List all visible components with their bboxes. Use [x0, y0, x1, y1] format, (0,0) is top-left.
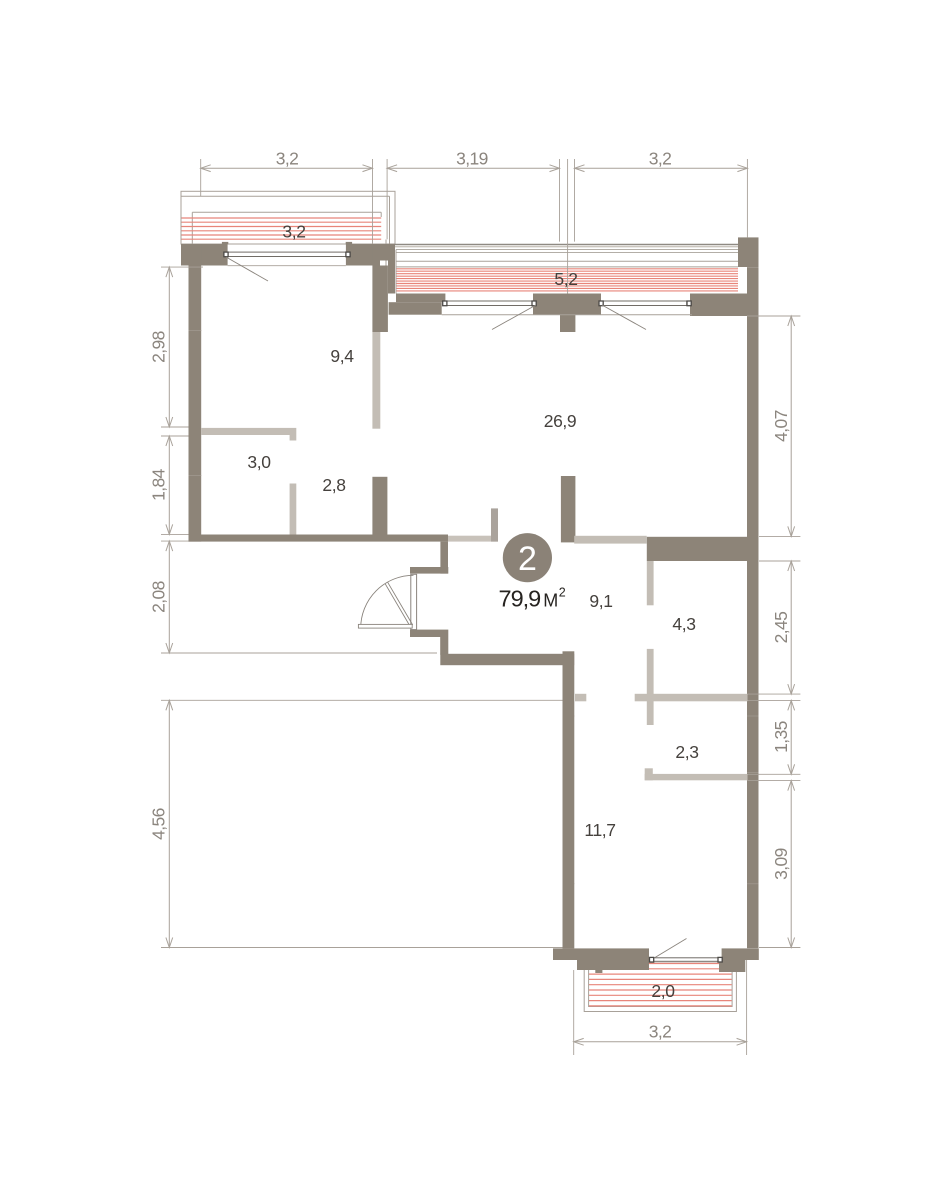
svg-text:2,08: 2,08 [149, 581, 169, 613]
svg-text:2,3: 2,3 [675, 742, 698, 762]
svg-text:3,19: 3,19 [456, 149, 488, 169]
svg-text:2: 2 [518, 540, 537, 578]
svg-text:5,2: 5,2 [554, 269, 577, 289]
svg-text:9,1: 9,1 [589, 591, 612, 611]
svg-text:4,3: 4,3 [672, 614, 695, 634]
svg-text:3,09: 3,09 [771, 848, 791, 880]
svg-text:3,0: 3,0 [247, 452, 271, 472]
svg-text:3,2: 3,2 [649, 1022, 672, 1042]
svg-text:1,35: 1,35 [771, 721, 791, 753]
svg-text:11,7: 11,7 [584, 820, 615, 840]
svg-text:2,98: 2,98 [149, 331, 169, 363]
svg-text:2,45: 2,45 [771, 612, 791, 644]
svg-text:3,2: 3,2 [649, 149, 672, 169]
svg-text:9,4: 9,4 [330, 346, 354, 366]
svg-text:26,9: 26,9 [544, 411, 576, 431]
svg-text:4,56: 4,56 [149, 808, 169, 840]
svg-text:3,2: 3,2 [282, 222, 305, 242]
svg-text:3,2: 3,2 [276, 149, 299, 169]
svg-text:2,0: 2,0 [651, 981, 675, 1001]
svg-text:1,84: 1,84 [149, 468, 169, 501]
svg-text:4,07: 4,07 [771, 410, 791, 442]
svg-text:2,8: 2,8 [322, 475, 345, 495]
